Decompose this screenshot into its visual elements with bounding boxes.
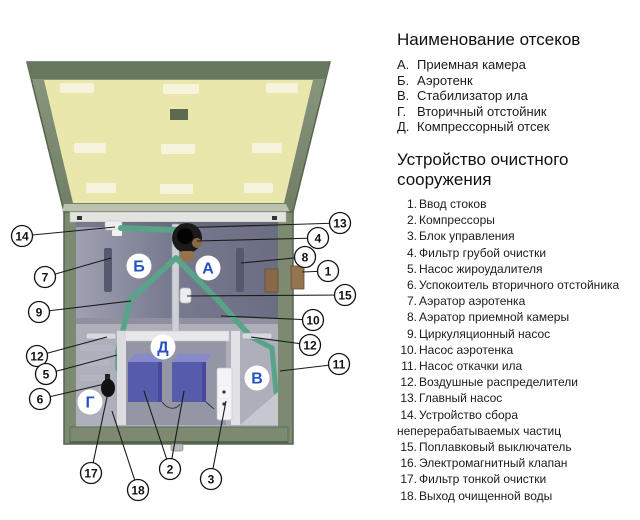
badge-d-letter: Д [157, 340, 169, 357]
compressor-right [172, 362, 206, 402]
lid-pad [60, 83, 94, 93]
tank-bottom-edge [70, 441, 288, 444]
item-label: Аэратор аэротенка [417, 294, 525, 308]
item-number: 15. [397, 439, 417, 455]
item-label: Электромагнитный клапан [417, 456, 567, 470]
list-item: Б.Аэротенк [397, 73, 639, 89]
callout-4-number: 4 [315, 232, 322, 246]
item-number: 12. [397, 374, 417, 390]
item-number: 17. [397, 471, 417, 487]
list-item: 12.Воздушные распределители [397, 374, 639, 390]
list-item: 1.Ввод стоков [397, 196, 639, 212]
callout-7-number: 7 [42, 271, 49, 285]
callout-11-number: 11 [333, 358, 346, 372]
legend-panel: Наименование отсеков А.Приемная камера Б… [397, 30, 639, 504]
list-item: 7.Аэратор аэротенка [397, 293, 639, 309]
badge-g-letter: Г [85, 395, 94, 412]
badge-v-letter: В [251, 371, 263, 388]
item-label: Поплавковый выключатель [417, 440, 572, 454]
inlet-pipe-outer [291, 266, 304, 289]
item-label: Фильтр грубой очистки [417, 246, 546, 260]
list-item: 14.Устройство сбора неперерабатываемых ч… [397, 407, 639, 439]
item-number: 1. [397, 196, 417, 212]
item-label: Компрессорный отсек [413, 119, 549, 134]
lid-pad [252, 143, 282, 153]
inlet-pipe-inner [265, 269, 278, 292]
item-letter: Г. [397, 104, 413, 120]
clarifier-step [80, 345, 114, 351]
callout-8-number: 8 [302, 251, 309, 265]
lid-pad [74, 143, 106, 153]
item-number: 8. [397, 309, 417, 325]
control-unit [217, 368, 232, 420]
lid-pad [160, 184, 193, 194]
item-number: 11. [397, 358, 417, 374]
item-number: 2. [397, 212, 417, 228]
list-item: А.Приемная камера [397, 57, 639, 73]
list-item: 16.Электромагнитный клапан [397, 455, 639, 471]
badge-a-letter: А [202, 261, 214, 278]
list-item: 4.Фильтр грубой очистки [397, 245, 639, 261]
item-number: 18. [397, 488, 417, 504]
list-item: 18.Выход очищенной воды [397, 488, 639, 504]
compressor-left-shade [158, 362, 162, 402]
item-label: Циркуляционный насос [417, 327, 550, 341]
lid-pad [161, 144, 195, 154]
callout-1-number: 1 [325, 265, 332, 279]
pump-mount [180, 251, 194, 261]
item-label: Насос жироудалителя [417, 262, 543, 276]
rim-latch-left [77, 216, 82, 220]
item-label: Главный насос [417, 391, 502, 405]
item-letter: Б. [397, 73, 413, 89]
main-pump-core [177, 228, 193, 244]
top-green-pipe [121, 228, 176, 230]
item-label: Фильтр тонкой очистки [417, 472, 546, 486]
lid-pad [244, 183, 273, 193]
item-label: Аэратор приемной камеры [417, 310, 569, 324]
callout-6-number: 6 [37, 393, 44, 407]
callout-9-number: 9 [36, 306, 43, 320]
badge-b-letter: Б [133, 259, 145, 276]
lid-pad [86, 183, 116, 193]
lid-bottom-rim [62, 204, 290, 212]
item-label: Насос аэротенка [417, 343, 513, 357]
lid-vent-plate [170, 109, 188, 120]
tank-top-rim [70, 212, 286, 222]
rim-latch-right [272, 216, 277, 220]
secondary-clarifier-stiller [101, 379, 115, 397]
item-number: 10. [397, 342, 417, 358]
lid [27, 62, 330, 212]
item-label: Блок управления [417, 229, 515, 243]
list-item: 11.Насос откачки ила [397, 358, 639, 374]
item-number: 13. [397, 390, 417, 406]
list-item: 8.Аэратор приемной камеры [397, 309, 639, 325]
item-letter: Д. [397, 119, 413, 135]
item-letter: В. [397, 88, 413, 104]
item-label: Устройство сбора неперерабатываемых част… [397, 408, 561, 438]
list-item: В.Стабилизатор ила [397, 88, 639, 104]
lid-pad [266, 83, 298, 93]
item-number: 16. [397, 455, 417, 471]
septic-tank-svg: 13 4 8 1 15 10 12 11 14 7 9 [0, 0, 396, 520]
item-label: Вторичный отстойник [413, 104, 547, 119]
item-label: Стабилизатор ила [413, 88, 528, 103]
control-unit-led [222, 390, 225, 393]
item-number: 3. [397, 228, 417, 244]
list-item: 3.Блок управления [397, 228, 639, 244]
callout-12-right-number: 12 [303, 339, 317, 353]
callout-10-number: 10 [306, 314, 320, 328]
list-item: 15.Поплавковый выключатель [397, 439, 639, 455]
compartments-title: Наименование отсеков [397, 30, 639, 50]
item-number: 5. [397, 261, 417, 277]
compressor-right-shade [202, 362, 206, 402]
item-letter: А. [397, 57, 413, 73]
page: 13 4 8 1 15 10 12 11 14 7 9 [0, 0, 640, 520]
list-item: 10.Насос аэротенка [397, 342, 639, 358]
list-item: 13.Главный насос [397, 390, 639, 406]
item-number: 14. [397, 407, 417, 423]
list-item: 5.Насос жироудалителя [397, 261, 639, 277]
aerotank-aerator [104, 248, 112, 292]
item-number: 9. [397, 326, 417, 342]
receiving-chamber-aerator [236, 248, 244, 292]
list-item: 2.Компрессоры [397, 212, 639, 228]
list-item: Г.Вторичный отстойник [397, 104, 639, 120]
item-label: Выход очищенной воды [417, 489, 552, 503]
callout-5-number: 5 [43, 368, 50, 382]
device-list: 1.Ввод стоков 2.Компрессоры 3.Блок управ… [397, 196, 639, 504]
compressor-bay-right-wall [231, 331, 240, 425]
item-label: Успокоитель вторичного отстойника [417, 278, 619, 292]
compartments-list: А.Приемная камера Б.Аэротенк В.Стабилиза… [397, 57, 639, 135]
item-number: 4. [397, 245, 417, 261]
compressor-left [128, 362, 162, 402]
item-label: Воздушные распределители [417, 375, 578, 389]
item-label: Насос откачки ила [417, 359, 522, 373]
callout-14-number: 14 [15, 230, 29, 244]
compressor-bay-left-wall [117, 331, 126, 425]
device-title: Устройство очистного сооружения [397, 150, 602, 190]
drain-tab [171, 444, 183, 451]
item-label: Приемная камера [413, 57, 526, 72]
list-item: 6.Успокоитель вторичного отстойника [397, 277, 639, 293]
callout-3-number: 3 [208, 473, 215, 487]
lid-pad [163, 84, 199, 94]
callout-13-number: 13 [333, 217, 347, 231]
list-item: 9.Циркуляционный насос [397, 326, 639, 342]
callout-15-number: 15 [338, 289, 352, 303]
callout-18-number: 18 [131, 484, 145, 498]
item-number: 6. [397, 277, 417, 293]
list-item: 17.Фильтр тонкой очистки [397, 471, 639, 487]
item-number: 7. [397, 293, 417, 309]
lid-top-bar [27, 62, 330, 79]
item-label: Компрессоры [417, 213, 495, 227]
compressor-right-top [172, 354, 212, 362]
callout-2-number: 2 [167, 463, 174, 477]
list-item: Д.Компрессорный отсек [397, 119, 639, 135]
callout-17-number: 17 [84, 467, 98, 481]
item-label: Аэротенк [413, 73, 473, 88]
callout-12-left-number: 12 [30, 350, 44, 364]
pump-brass-detail [192, 238, 202, 248]
item-label: Ввод стоков [417, 197, 486, 211]
septic-tank-illustration: 13 4 8 1 15 10 12 11 14 7 9 [0, 0, 396, 520]
clarifier-step [80, 375, 106, 381]
